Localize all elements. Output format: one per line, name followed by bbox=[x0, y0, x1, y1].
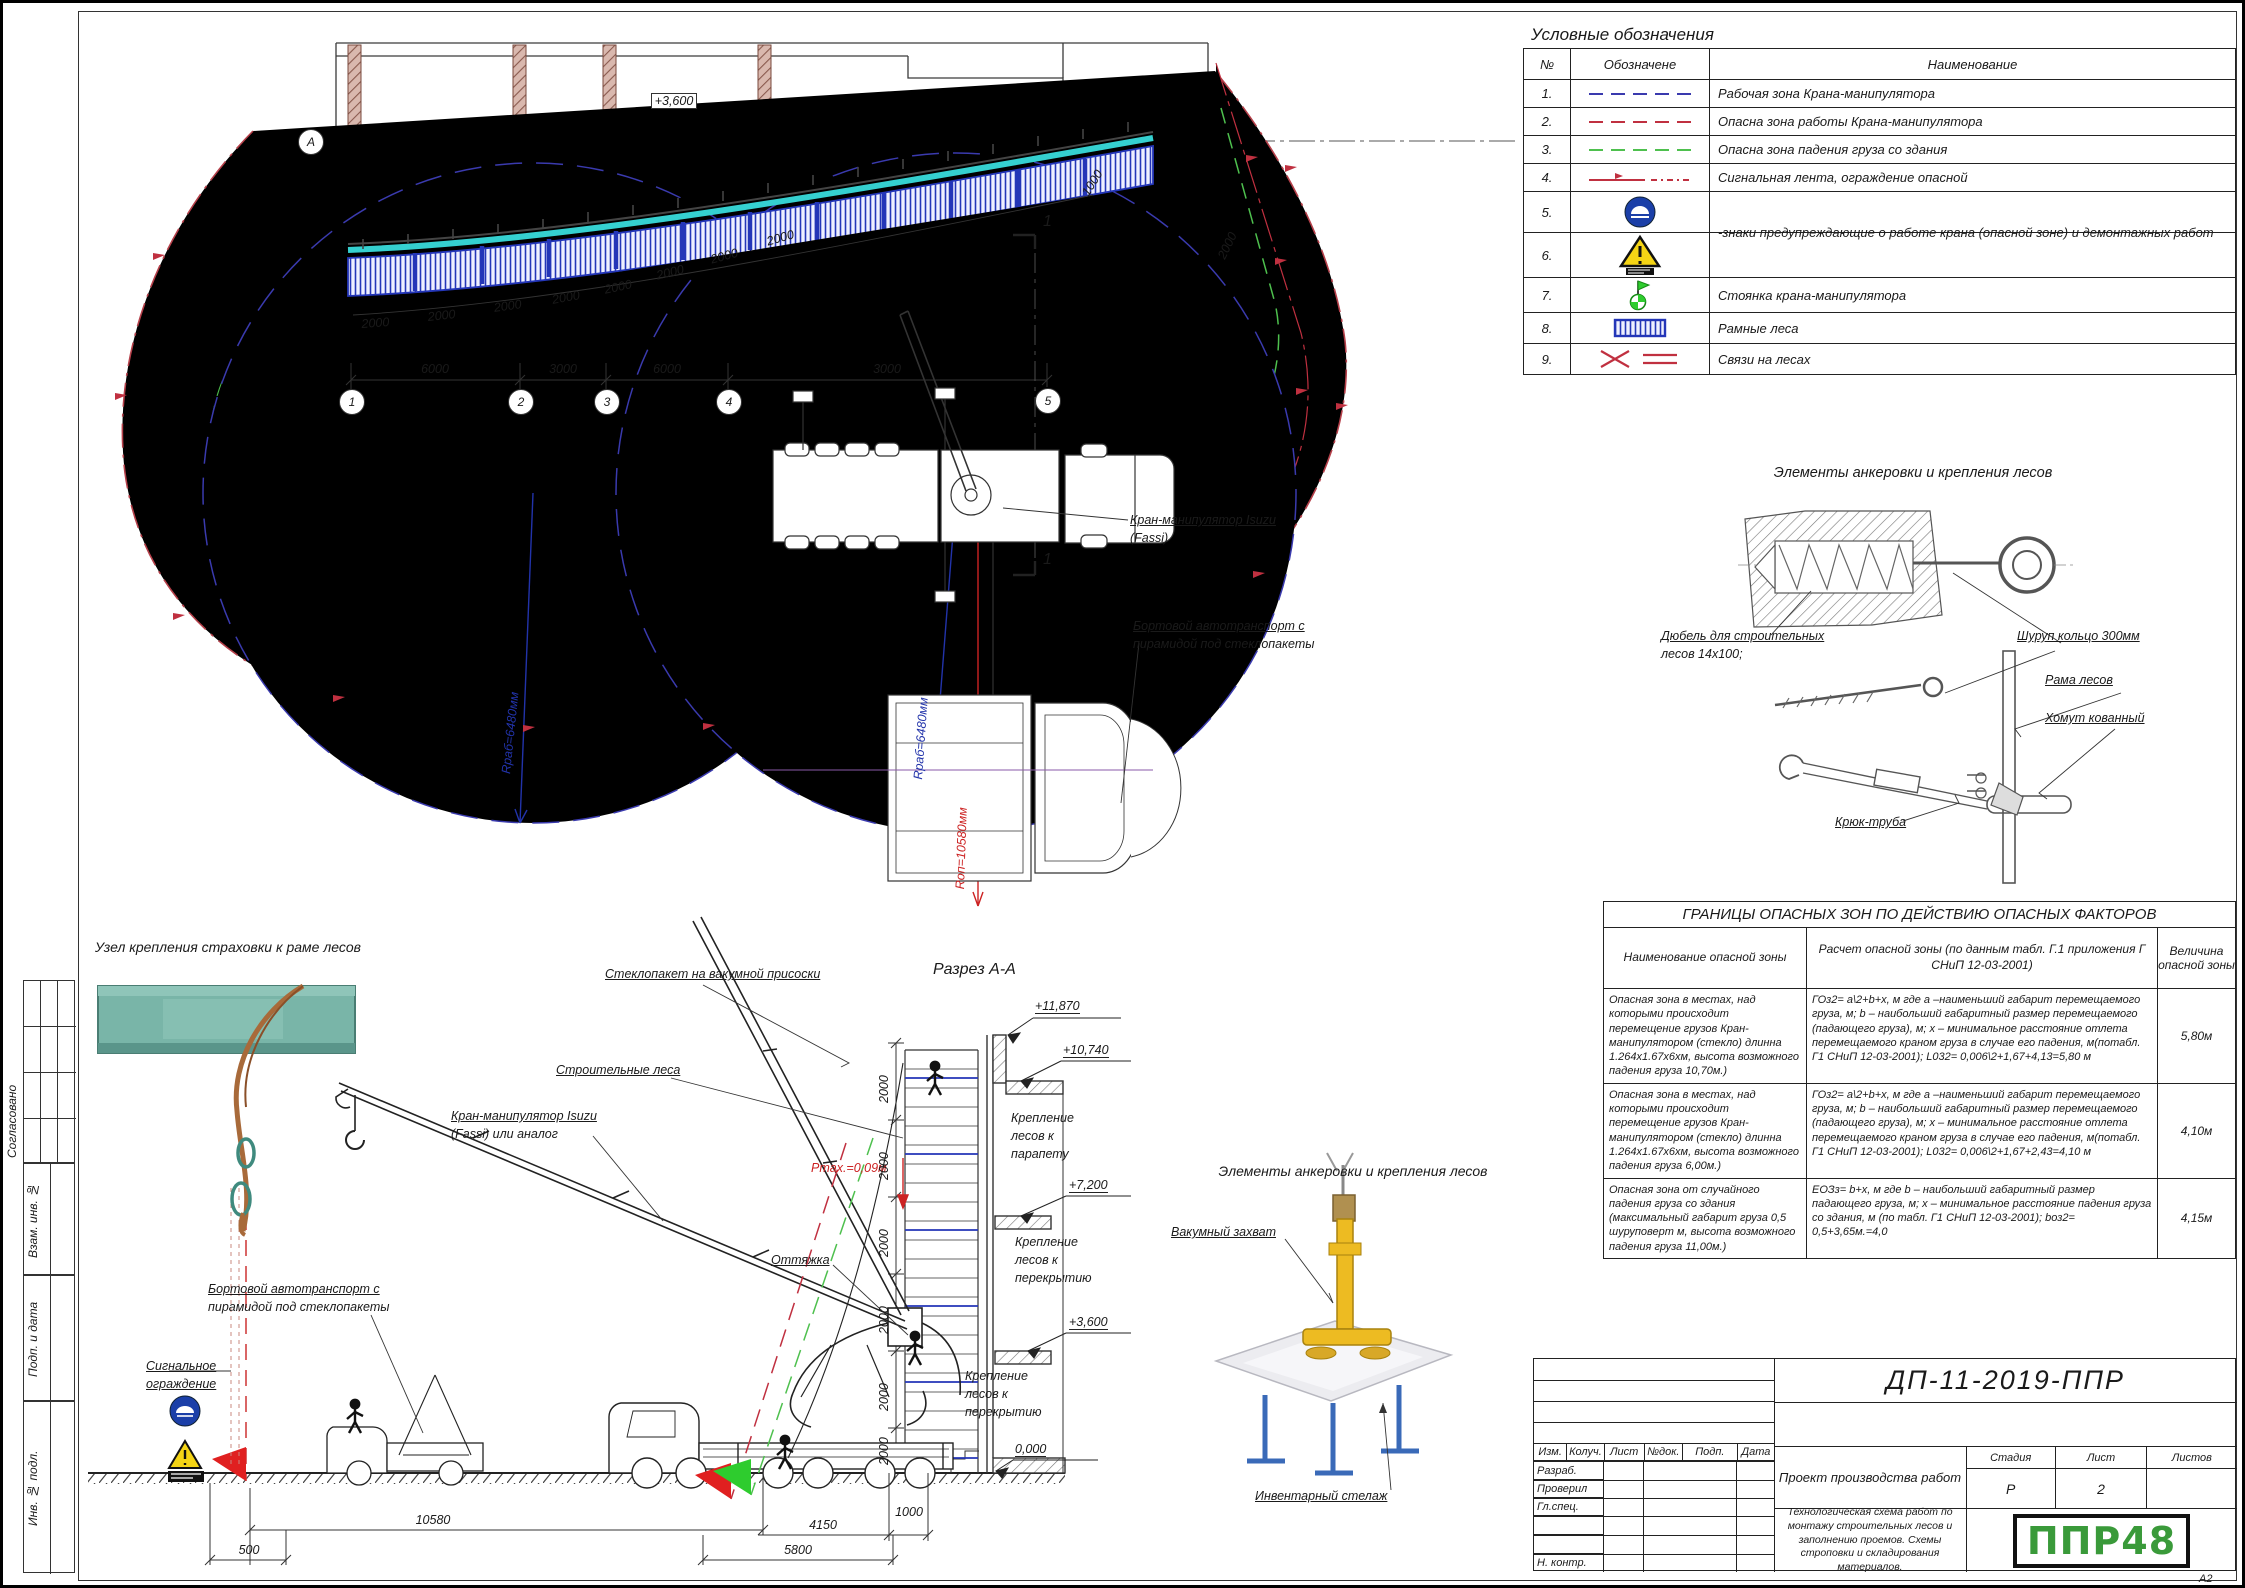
dowel-label-2: лесов 14х100; bbox=[1661, 647, 1743, 661]
sec-2000-1: 2000 bbox=[877, 1075, 891, 1103]
col-ndok: №док. bbox=[1645, 1444, 1683, 1461]
row-razrab: Разраб. bbox=[1534, 1462, 1604, 1480]
cut-mark-1-top: 1 bbox=[1043, 213, 1052, 231]
fix-parapet-2: лесов к bbox=[1011, 1129, 1054, 1143]
doc-title: Технологическая схема работ по монтажу с… bbox=[1780, 1506, 1960, 1574]
helmet-sign-icon bbox=[1622, 194, 1658, 230]
dim-2000-2: 2000 bbox=[427, 307, 456, 324]
legend-row-num: 9. bbox=[1524, 344, 1571, 374]
dim-1000-sec: 1000 bbox=[887, 1505, 931, 1519]
legend-col-sym: Обозначене bbox=[1571, 49, 1710, 79]
danger-zone-line-icon bbox=[1585, 117, 1695, 127]
col-podp: Подп. bbox=[1683, 1444, 1738, 1461]
danger-zones-table: ГРАНИЦЫ ОПАСНЫХ ЗОН ПО ДЕЙСТВИЮ ОПАСНЫХ … bbox=[1603, 901, 2236, 1259]
side-grid bbox=[23, 980, 75, 1163]
legend-row-num: 7. bbox=[1524, 278, 1571, 312]
legend-row-name: Стоянка крана-манипулятора bbox=[1710, 278, 2235, 312]
fix-parapet-1: Крепление bbox=[1011, 1111, 1074, 1125]
signal-fence-label: Сигнальное bbox=[146, 1359, 216, 1373]
legend-row-name: Связи на лесах bbox=[1710, 344, 2235, 374]
title-block: Изм. Колуч. Лист №док. Подп. Дата Разраб… bbox=[1533, 1358, 2236, 1571]
glass-label: Стеклопакет на вакумной присоски bbox=[605, 967, 820, 981]
drawing-sheet: { "sheet": { "code": "ДП-11-2019-ППР", "… bbox=[0, 0, 2245, 1588]
grid-bubble-3: 3 bbox=[594, 389, 620, 415]
level-0000: 0,000 bbox=[1015, 1442, 1046, 1457]
sheets-label: Листов bbox=[2147, 1447, 2237, 1468]
pmax-label: Pmax.=0,09м bbox=[811, 1161, 887, 1175]
sheet-label: Лист bbox=[2056, 1447, 2146, 1468]
fall-zone-line-icon bbox=[1585, 145, 1695, 155]
plan-crane-label-2: (Fassi) bbox=[1130, 531, 1168, 545]
legend-title: Условные обозначения bbox=[1531, 25, 1714, 45]
fix-slab2-1: Крепление bbox=[965, 1369, 1028, 1383]
warning-triangle-icon bbox=[1618, 234, 1662, 276]
danger-col3: Величина опасной зоны bbox=[2158, 928, 2235, 988]
sec-2000-5: 2000 bbox=[877, 1383, 891, 1411]
dim-10580: 10580 bbox=[403, 1513, 463, 1527]
fix-slab2-3: перекрытию bbox=[965, 1405, 1042, 1419]
dim-6000-a: 6000 bbox=[415, 362, 455, 376]
side-soglasovano: Согласовано bbox=[5, 1071, 19, 1171]
danger-row-name: Опасная зона в местах, над которыми прои… bbox=[1604, 989, 1807, 1083]
section-crane-label-2: (Fassi) или аналог bbox=[451, 1127, 558, 1141]
document-code: ДП-11-2019-ППР bbox=[1886, 1365, 2125, 1396]
grid-bubble-5: 5 bbox=[1035, 388, 1061, 414]
vacuum-title: Элементы анкеровки и крепления лесов bbox=[1203, 1163, 1503, 1179]
grid-bubble-2: 2 bbox=[508, 389, 534, 415]
sec-2000-2: 2000 bbox=[877, 1152, 891, 1180]
plan-truck-label-2: пирамидой под стеклопакеты bbox=[1133, 637, 1314, 651]
section-title: Разрез А-А bbox=[933, 961, 1016, 979]
legend-row-name: Опасна зона падения груза со здания bbox=[1710, 136, 2235, 163]
ppr48-logo: ППР48 bbox=[2013, 1514, 2190, 1568]
plan-level-badge: +3,600 bbox=[651, 93, 697, 109]
legend-row-num: 3. bbox=[1524, 136, 1571, 163]
side-podp: Подп. и дата bbox=[23, 1275, 75, 1401]
col-list: Лист bbox=[1605, 1444, 1645, 1461]
legend-col-name: Наименование bbox=[1710, 49, 2235, 79]
danger-row-value: 5,80м bbox=[2158, 989, 2235, 1083]
legend-row-num: 2. bbox=[1524, 108, 1571, 135]
radius-danger-label: Rоп=10580мм bbox=[953, 807, 970, 890]
legend-table: № Обозначене Наименование 1. Рабочая зон… bbox=[1523, 48, 2236, 375]
danger-row-calc: ЕОЗз= b+х, м где b – наибольший габаритн… bbox=[1807, 1179, 2158, 1258]
sec-2000-3: 2000 bbox=[877, 1229, 891, 1257]
grid-bubble-1: 1 bbox=[339, 389, 365, 415]
danger-table-title: ГРАНИЦЫ ОПАСНЫХ ЗОН ПО ДЕЙСТВИЮ ОПАСНЫХ … bbox=[1604, 902, 2235, 928]
strahovka-title: Узел крепления страховки к раме лесов bbox=[95, 939, 361, 955]
level-10740: +10,740 bbox=[1063, 1043, 1109, 1058]
sec-2000-4: 2000 bbox=[877, 1306, 891, 1334]
signal-tape-line-icon bbox=[1585, 171, 1695, 185]
section-truck-label: Бортовой автотранспорт с bbox=[208, 1282, 380, 1296]
anchor-detail-title: Элементы анкеровки и крепления лесов bbox=[1703, 465, 2123, 482]
legend-row-num: 8. bbox=[1524, 313, 1571, 343]
side-inv: Инв. № подл. bbox=[23, 1401, 75, 1573]
format-label: А2 bbox=[2199, 1573, 2212, 1586]
danger-row-name: Опасная зона от случайного падения груза… bbox=[1604, 1179, 1807, 1258]
legend-col-num: № bbox=[1524, 49, 1571, 79]
crane-station-icon bbox=[1625, 279, 1655, 311]
dowel-label: Дюбель для строительных bbox=[1661, 629, 1824, 643]
plan-truck-label: Бортовой автотранспорт с bbox=[1133, 619, 1305, 633]
sheets-value bbox=[2147, 1469, 2237, 1508]
level-7200: +7,200 bbox=[1069, 1178, 1108, 1193]
dim-3000-a: 3000 bbox=[543, 362, 583, 376]
legend-row-name: -знаки предупреждающие о работе крана (о… bbox=[1710, 212, 2235, 252]
sec-2000-6: 2000 bbox=[877, 1437, 891, 1465]
danger-row-value: 4,15м bbox=[2158, 1179, 2235, 1258]
fix-slab2-2: лесов к bbox=[965, 1387, 1008, 1401]
plan-crane-label: Кран-манипулятор Isuzu bbox=[1130, 513, 1276, 527]
legend-row-num: 6. bbox=[1524, 233, 1571, 277]
level-11870: +11,870 bbox=[1035, 999, 1080, 1014]
dim-4150: 4150 bbox=[798, 1518, 848, 1532]
legend-row-name: Рамные леса bbox=[1710, 313, 2235, 343]
plan-crane-leader bbox=[1003, 498, 1133, 528]
vacuum-grab-label: Вакумный захват bbox=[1171, 1225, 1276, 1239]
axis-bubble-a: А bbox=[298, 129, 324, 155]
legend-row-num: 5. bbox=[1524, 192, 1571, 232]
guy-label: Оттяжка bbox=[771, 1253, 830, 1267]
col-kol: Колуч. bbox=[1567, 1444, 1604, 1461]
legend-row-name: Опасна зона работы Крана-манипулятора bbox=[1710, 108, 2235, 135]
danger-col2: Расчет опасной зоны (по данным табл. Г.1… bbox=[1807, 928, 2158, 988]
scaffold-braces-icon bbox=[1595, 348, 1685, 370]
fix-slab1-1: Крепление bbox=[1015, 1235, 1078, 1249]
cut-mark-1-bottom: 1 bbox=[1043, 551, 1052, 569]
sheet-value: 2 bbox=[2056, 1469, 2146, 1508]
legend-row-num: 4. bbox=[1524, 164, 1571, 191]
frame-label: Рама лесов bbox=[2045, 673, 2113, 687]
col-data: Дата bbox=[1738, 1444, 1774, 1461]
dim-5800: 5800 bbox=[773, 1543, 823, 1557]
stage-label: Стадия bbox=[1966, 1447, 2056, 1468]
doc-type: Проект производства работ bbox=[1779, 1470, 1961, 1485]
row-proveril: Проверил bbox=[1534, 1480, 1604, 1498]
danger-row-calc: ГОз2= а\2+b+х, м где а –наименьший габар… bbox=[1807, 1084, 2158, 1178]
inventory-rack-label: Инвентарный стелаж bbox=[1255, 1489, 1387, 1503]
frame-scaffold-icon bbox=[1613, 318, 1667, 338]
grid-bubble-4: 4 bbox=[716, 389, 742, 415]
danger-col1: Наименование опасной зоны bbox=[1604, 928, 1807, 988]
section-crane-label: Кран-манипулятор Isuzu bbox=[451, 1109, 597, 1123]
legend-row-name: Рабочая зона Крана-манипулятора bbox=[1710, 80, 2235, 107]
col-izm: Изм. bbox=[1534, 1444, 1567, 1461]
danger-row-calc: ГОз2= а\2+b+х, м где а –наименьший габар… bbox=[1807, 989, 2158, 1083]
fix-parapet-3: парапету bbox=[1011, 1147, 1069, 1161]
side-vzam: Взам. инв. № bbox=[23, 1163, 75, 1275]
work-zone-line-icon bbox=[1585, 89, 1695, 99]
dim-3000-b: 3000 bbox=[867, 362, 907, 376]
fix-slab1-2: лесов к bbox=[1015, 1253, 1058, 1267]
scaffold-label: Строительные леса bbox=[556, 1063, 680, 1077]
legend-row-name: Сигнальная лента, ограждение опасной bbox=[1710, 164, 2235, 191]
legend-row-num: 1. bbox=[1524, 80, 1571, 107]
row-glspec: Гл.спец. bbox=[1534, 1498, 1604, 1516]
level-3600: +3,600 bbox=[1069, 1315, 1108, 1330]
danger-row-name: Опасная зона в местах, над которыми прои… bbox=[1604, 1084, 1807, 1178]
dim-500: 500 bbox=[229, 1543, 269, 1557]
dim-2000-1: 2000 bbox=[361, 315, 390, 331]
danger-row-value: 4,10м bbox=[2158, 1084, 2235, 1178]
stage-value: Р bbox=[1966, 1469, 2056, 1508]
dim-6000-b: 6000 bbox=[647, 362, 687, 376]
screw-ring-label: Шуруп кольцо 300мм bbox=[2017, 629, 2140, 643]
fix-slab1-3: перекрытию bbox=[1015, 1271, 1092, 1285]
plan-truck-leader bbox=[1111, 643, 1151, 813]
clamp-label: Хомут кованный bbox=[2045, 711, 2145, 725]
signal-fence-label-2: ограждение bbox=[146, 1377, 216, 1391]
row-nkontr: Н. контр. bbox=[1534, 1554, 1604, 1572]
hook-pipe-label: Крюк-труба bbox=[1835, 815, 1906, 829]
section-truck-label-2: пирамидой под стеклопакеты bbox=[208, 1300, 389, 1314]
